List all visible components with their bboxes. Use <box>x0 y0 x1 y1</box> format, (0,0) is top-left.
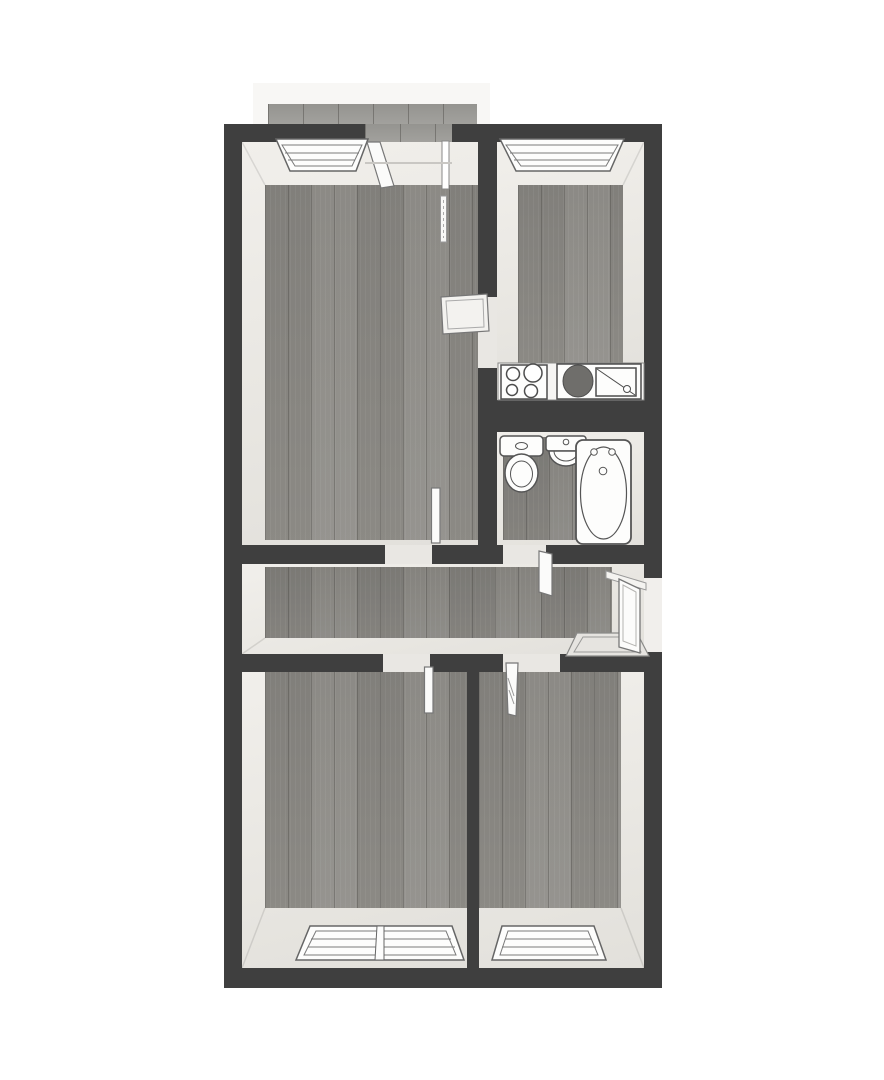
bathtub <box>576 440 631 544</box>
window-bedroom-left <box>296 926 464 960</box>
window-bedroom-right <box>492 926 606 960</box>
door-bedroom-right <box>506 663 518 716</box>
fixtures-overlay <box>0 0 884 1080</box>
balcony-door <box>365 141 452 242</box>
toilet <box>500 436 543 492</box>
window-kitchen <box>500 139 624 171</box>
door-living-hall <box>432 488 441 543</box>
floor-plan <box>0 0 884 1080</box>
door-bathroom-hall <box>539 551 552 596</box>
cooktop <box>501 364 547 399</box>
door-bedroom-left <box>425 667 434 713</box>
corner-shading <box>242 142 644 968</box>
kitchen-sink <box>557 364 641 399</box>
window-living-room <box>276 139 368 171</box>
door-living-kitchen <box>441 294 489 334</box>
